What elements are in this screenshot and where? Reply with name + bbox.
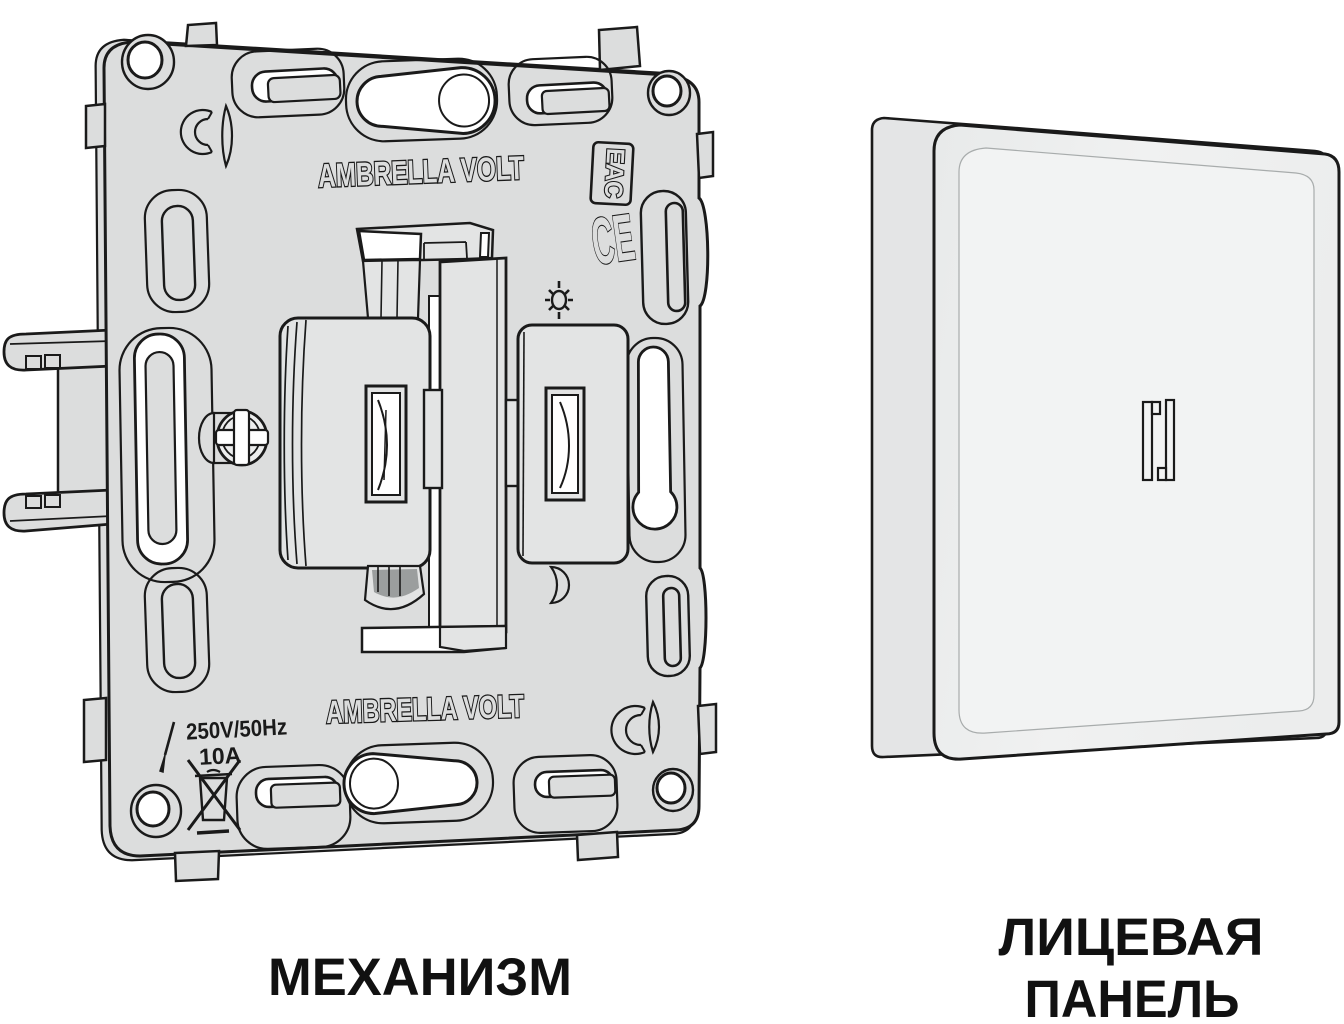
svg-text:ЛИЦЕВАЯ: ЛИЦЕВАЯ — [999, 908, 1264, 967]
svg-text:250V/50Hz: 250V/50Hz — [185, 713, 287, 744]
svg-text:МЕХАНИЗМ: МЕХАНИЗМ — [268, 948, 572, 1007]
svg-text:AMBRELLA VOLT: AMBRELLA VOLT — [325, 688, 524, 730]
svg-text:ПАНЕЛЬ: ПАНЕЛЬ — [1025, 970, 1240, 1024]
svg-text:EAC: EAC — [599, 147, 630, 198]
